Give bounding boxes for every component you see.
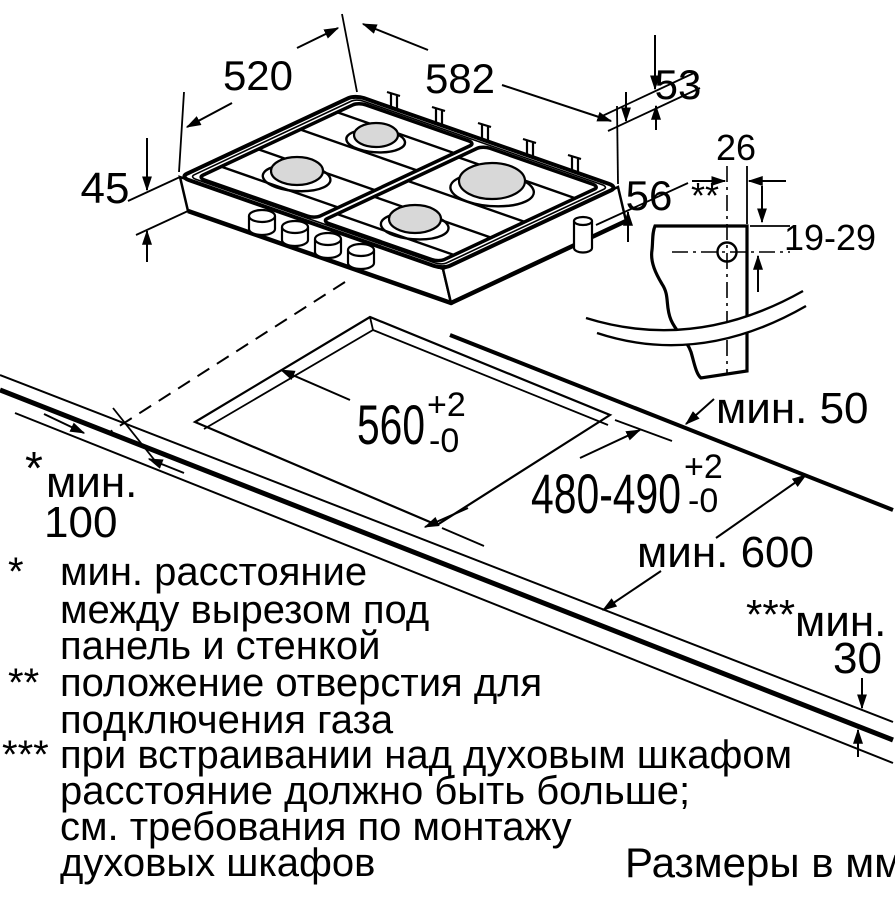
footnote2-marker: ** <box>8 661 39 705</box>
burner-cap-back-left <box>354 123 398 147</box>
dim-arrow-582-top <box>363 24 428 50</box>
hob <box>180 92 626 303</box>
units-caption: Размеры в мм <box>625 839 895 886</box>
dim-label-560-tol-minus: -0 <box>429 422 459 460</box>
dim-label-480: 480-490 <box>531 462 681 525</box>
dim-arrow-560 <box>281 370 350 400</box>
dim-label-53: 53 <box>655 61 702 108</box>
dim-label-min50: мин. 50 <box>716 384 869 433</box>
dim-label-480-tol-minus: -0 <box>688 482 718 520</box>
burner-cap-right-big <box>459 163 525 199</box>
dim-arrow-480-right <box>580 430 640 458</box>
projection-dashed-line <box>110 282 345 432</box>
dim-label-520: 520 <box>223 52 293 99</box>
ext-line-45-top <box>128 177 180 201</box>
dim-label-min600: мин. 600 <box>637 528 814 577</box>
installation-diagram-page: 560 +2 -0 480-490 +2 -0 мин. 50 мин. 600… <box>0 0 895 899</box>
burner-cap-front-left <box>271 157 323 185</box>
ext-line-back-corner <box>342 14 357 92</box>
footnote3-line4: духовых шкафов <box>60 841 375 885</box>
dim-label-gas-marker: ** <box>691 175 719 216</box>
hob-foot-top <box>574 217 592 225</box>
knob-top <box>315 233 341 245</box>
ext-line-left-corner <box>179 92 184 172</box>
dim-arrow-520-top <box>297 28 338 48</box>
dim-label-582: 582 <box>425 55 495 102</box>
knob-top <box>249 210 275 222</box>
dim-label-min100-marker: * <box>25 442 43 494</box>
dim-arrow-582-right <box>502 85 611 121</box>
ext-line-cutout-front <box>442 528 484 546</box>
dim-label-560: 560 <box>357 393 425 456</box>
cutout-inner-left-edge <box>204 330 373 429</box>
dim-label-45: 45 <box>81 164 130 213</box>
dim-arrow-min50 <box>686 399 714 424</box>
knob-top <box>282 221 308 233</box>
knob-top <box>348 244 374 256</box>
dim-label-min30-value: 30 <box>833 634 882 683</box>
footnote1-marker: * <box>8 550 24 594</box>
installation-diagram: 560 +2 -0 480-490 +2 -0 мин. 50 мин. 600… <box>0 0 895 899</box>
dim-label-min100-value: 100 <box>44 498 117 547</box>
dim-label-480-tol-plus: +2 <box>684 448 723 486</box>
footnotes: * мин. расстояние между вырезом под пане… <box>2 550 792 885</box>
dim-label-56: 56 <box>626 172 673 219</box>
dim-label-26: 26 <box>716 127 756 168</box>
ext-line-45-bottom <box>136 211 188 235</box>
dim-arrow-480-front <box>425 508 468 527</box>
burner-cap-front-right <box>389 205 441 233</box>
dim-label-560-tol-plus: +2 <box>427 386 466 424</box>
dim-label-1929: 19-29 <box>784 217 876 258</box>
dim-arrow-520-left <box>187 103 232 127</box>
footnote3-marker: *** <box>2 733 49 777</box>
gas-connection-detail: 26 ** 19-29 <box>586 127 876 378</box>
ext-line-right-corner-vertical <box>617 106 618 184</box>
dim-label-min30-marker: *** <box>746 591 795 638</box>
